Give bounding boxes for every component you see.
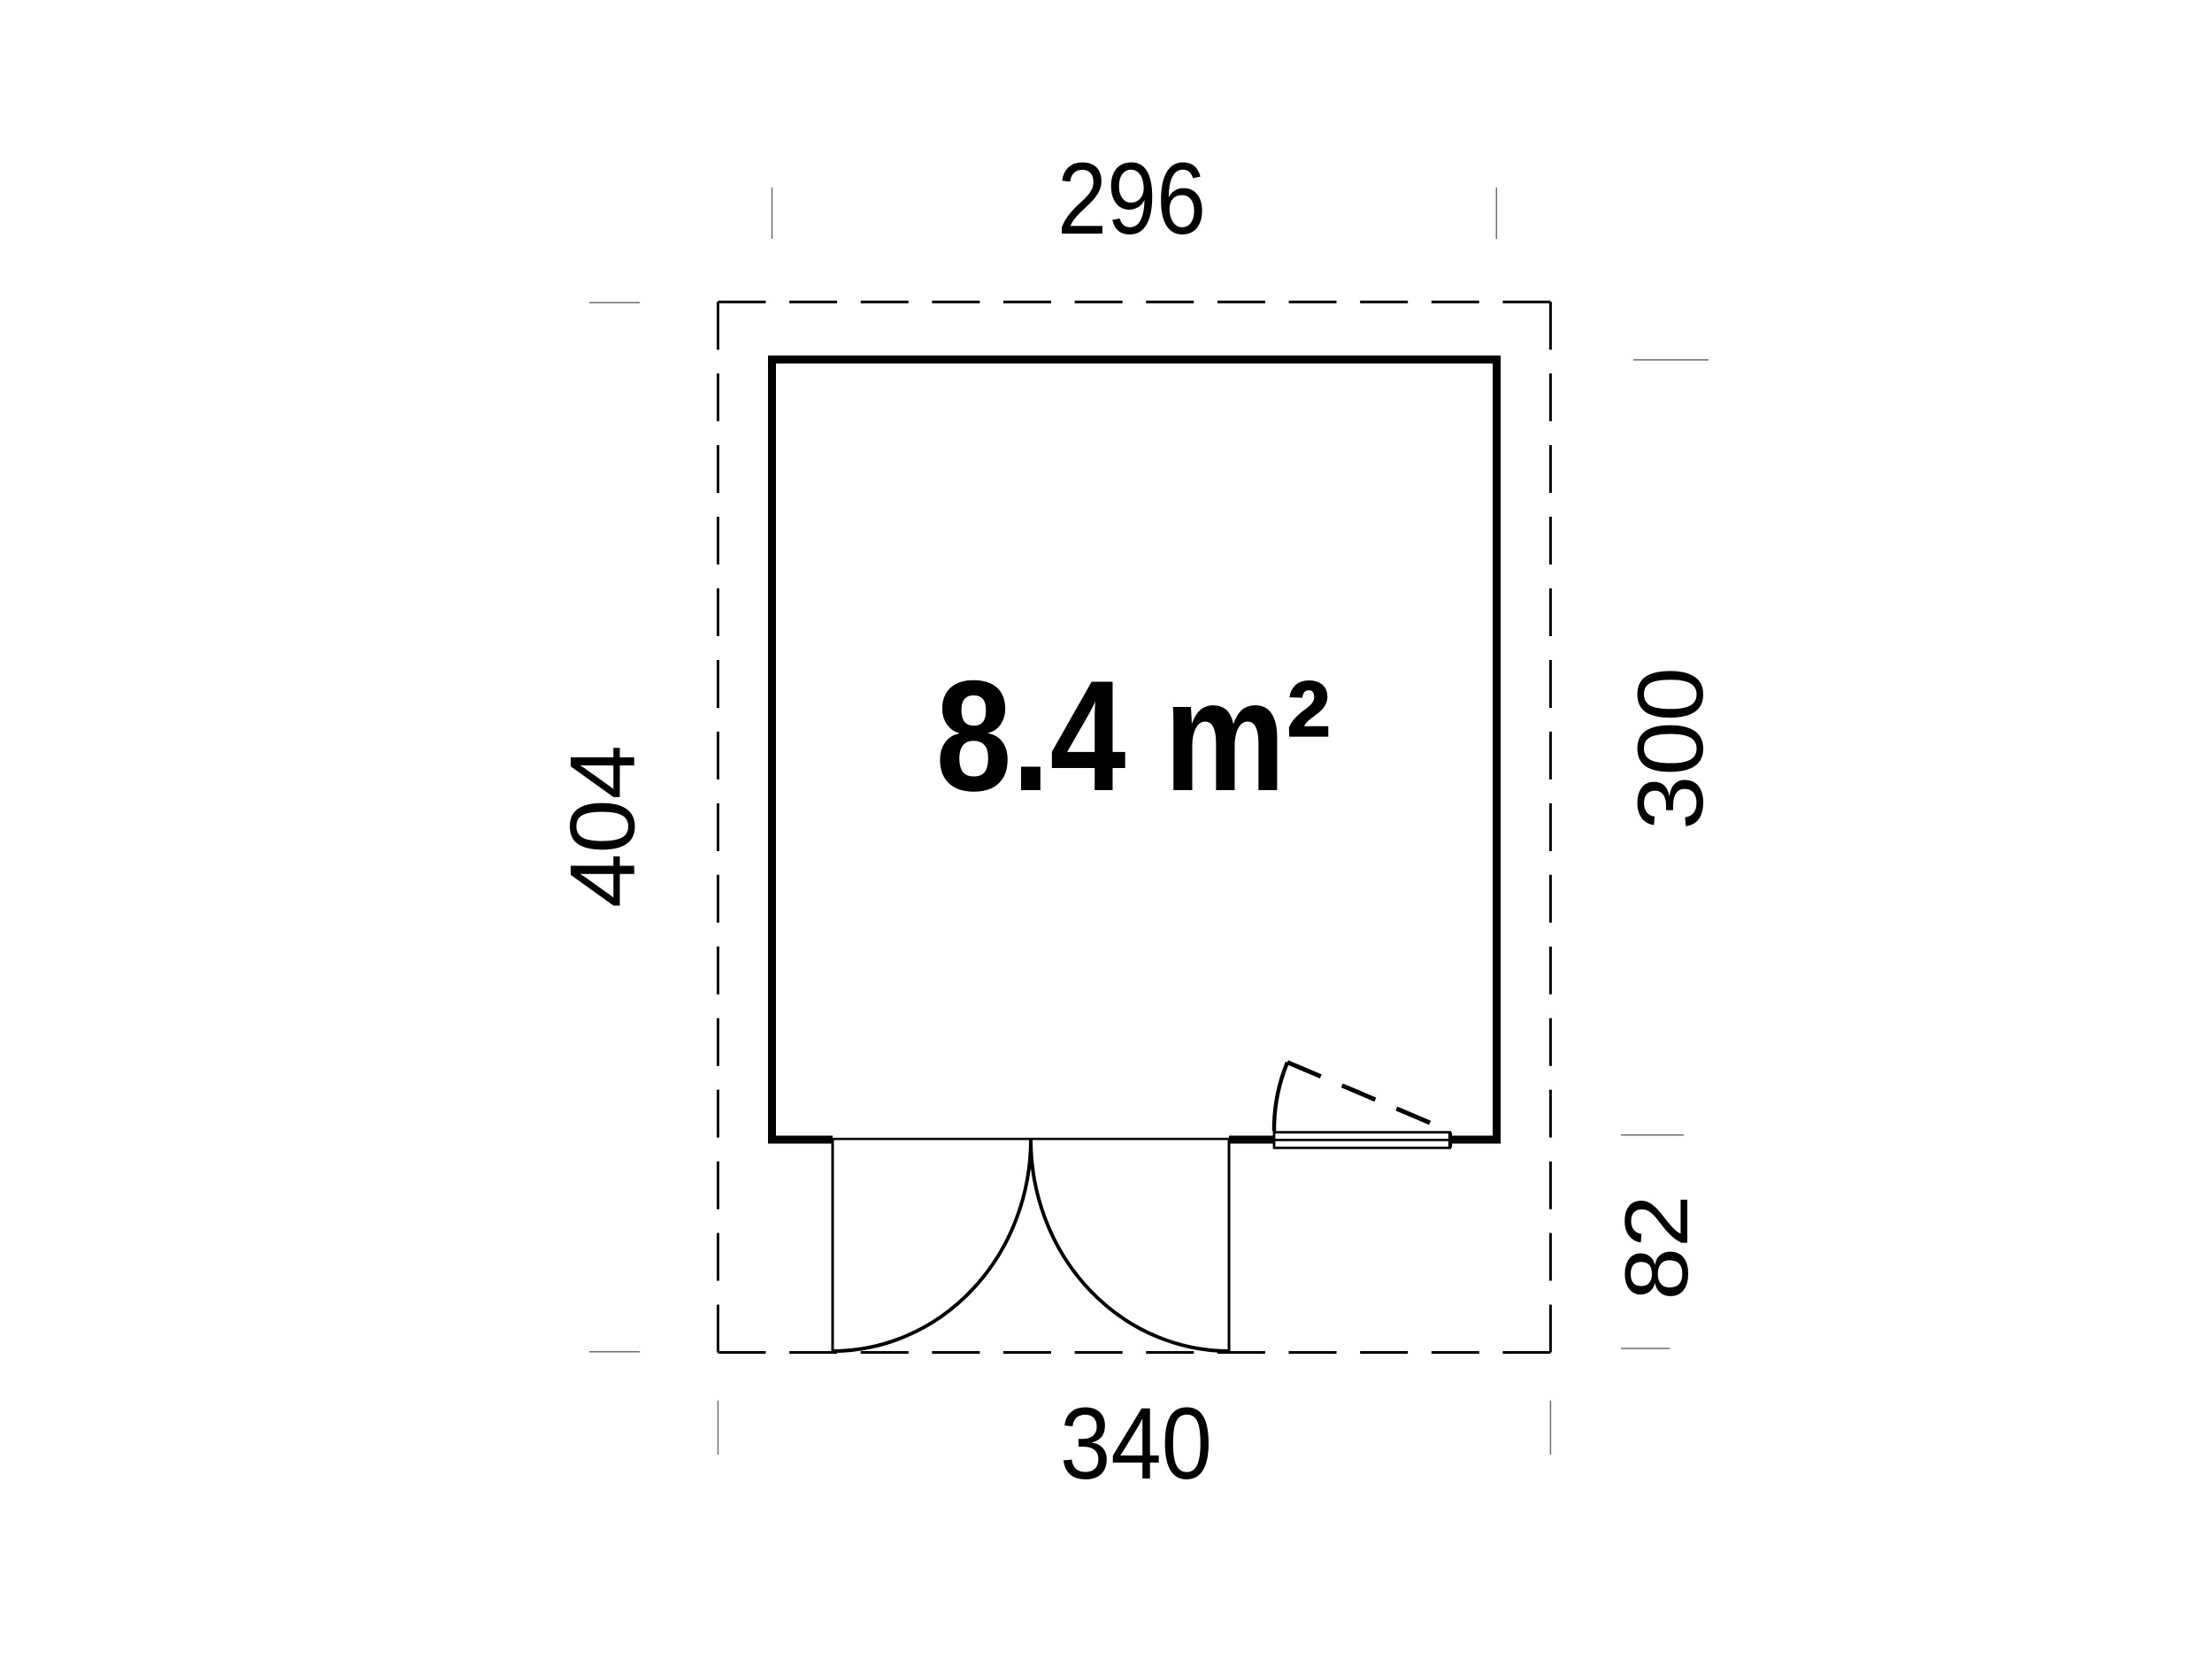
svg-text:300: 300 (1619, 667, 1723, 830)
svg-text:404: 404 (552, 745, 655, 908)
svg-text:8.4 m²: 8.4 m² (936, 648, 1332, 824)
svg-text:340: 340 (1060, 1387, 1212, 1501)
svg-text:296: 296 (1057, 142, 1206, 256)
svg-text:82: 82 (1608, 1195, 1707, 1301)
